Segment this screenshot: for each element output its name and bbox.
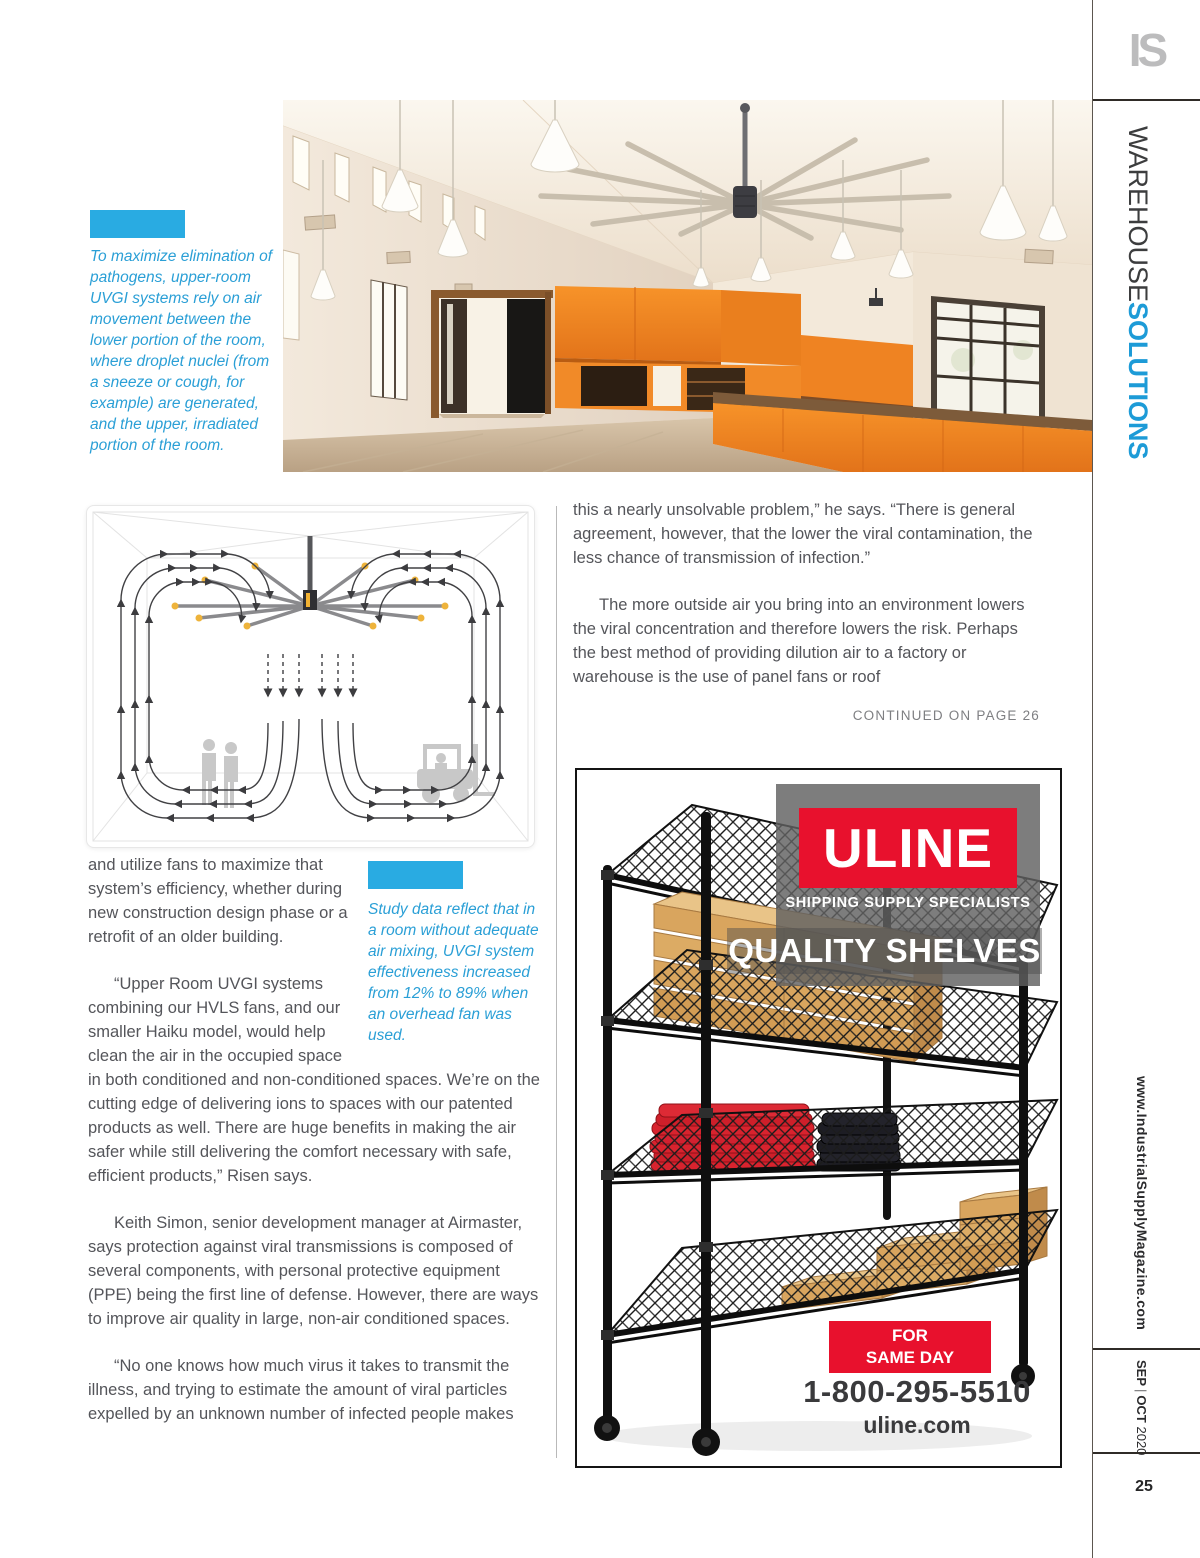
continued-notice: CONTINUED ON PAGE 26 xyxy=(573,708,1040,723)
ad-promo-line1: ORDER BY 6 PM FOR xyxy=(829,1303,991,1347)
paragraph: Keith Simon, senior development manager … xyxy=(88,1211,546,1331)
sidebar-divider xyxy=(1092,0,1093,1558)
sidebar-rule-top xyxy=(1093,1348,1200,1350)
warehouse-photo xyxy=(283,100,1092,472)
uline-tagline: SHIPPING SUPPLY SPECIALISTS xyxy=(776,895,1040,911)
photo-caption: To maximize elimination of pathogens, up… xyxy=(90,246,274,456)
ad-promo-box: ORDER BY 6 PM FOR SAME DAY SHIPPING xyxy=(829,1321,991,1373)
issue-month-1: SEP xyxy=(1134,1360,1149,1386)
magazine-page: IS WAREHOUSESOLUTIONS www.IndustrialSupp… xyxy=(0,0,1200,1558)
airflow-diagram-art xyxy=(87,506,534,847)
photo-caption-tag xyxy=(90,210,185,238)
issue-date: SEP|OCT 2020 xyxy=(1134,1360,1149,1455)
magazine-logo: IS xyxy=(1129,23,1164,77)
diagram-caption-tag xyxy=(368,861,463,889)
ad-website: uline.com xyxy=(745,1412,1062,1439)
magazine-website: www.IndustrialSupplyMagazine.com xyxy=(1134,1076,1150,1330)
paragraph: this a nearly unsolvable problem,” he sa… xyxy=(573,498,1040,570)
uline-ad: ULINE SHIPPING SUPPLY SPECIALISTS QUALIT… xyxy=(575,768,1062,1468)
section-title: WAREHOUSESOLUTIONS xyxy=(1122,126,1153,460)
diagram-caption: Study data reflect that in a room withou… xyxy=(368,899,546,1046)
ad-headline: QUALITY SHELVES xyxy=(727,928,1042,974)
magazine-logo-box: IS xyxy=(1093,0,1200,101)
column-rule xyxy=(556,506,557,1458)
issue-divider: | xyxy=(1134,1386,1149,1395)
section-title-warehouse: WAREHOUSE xyxy=(1123,126,1153,302)
ad-phone: 1-800-295-5510 xyxy=(745,1374,1062,1410)
right-column: this a nearly unsolvable problem,” he sa… xyxy=(573,498,1040,723)
section-title-solutions: SOLUTIONS xyxy=(1123,302,1153,460)
issue-month-2: OCT xyxy=(1134,1395,1149,1422)
warehouse-photo-art xyxy=(283,100,1092,472)
paragraph: “No one knows how much virus it takes to… xyxy=(88,1354,546,1426)
left-column: Study data reflect that in a room withou… xyxy=(88,853,546,1449)
uline-logo: ULINE xyxy=(799,808,1017,888)
diagram-caption-block: Study data reflect that in a room withou… xyxy=(368,861,546,1046)
page-number: 25 xyxy=(1118,1478,1170,1496)
sidebar-rule-bottom xyxy=(1093,1452,1200,1454)
airflow-diagram xyxy=(86,505,535,848)
paragraph: The more outside air you bring into an e… xyxy=(573,593,1040,689)
